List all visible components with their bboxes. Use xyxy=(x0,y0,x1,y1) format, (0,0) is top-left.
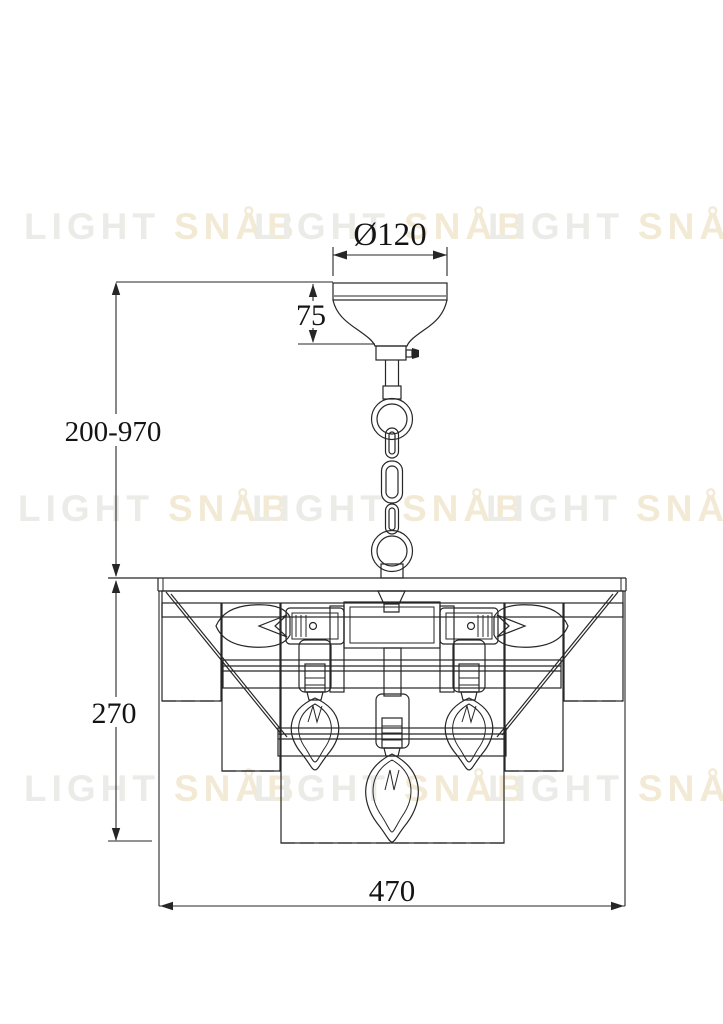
center-hub xyxy=(344,602,440,648)
ceiling-canopy-drawing xyxy=(333,283,447,360)
hanging-height-label: 200-970 xyxy=(65,416,162,448)
canopy-diameter-label: Ø120 xyxy=(353,217,426,253)
pendant-bulb-center xyxy=(366,648,419,842)
canopy-height-label: 75 xyxy=(296,299,326,332)
technical-line-drawing: Ø120 75 200-970 270 xyxy=(0,0,723,1024)
crystal-rod-fringe xyxy=(162,603,623,843)
dimension-canopy-height: 75 xyxy=(116,282,375,344)
canopy-screw xyxy=(406,348,419,359)
dimension-canopy-diameter: Ø120 xyxy=(333,217,447,276)
dimension-body-width: 470 xyxy=(159,591,625,910)
body-width-label: 470 xyxy=(369,873,416,908)
diagonal-arms xyxy=(166,592,618,737)
chandelier-body-drawing xyxy=(108,578,626,843)
body-height-label: 270 xyxy=(92,697,137,730)
dimension-hanging-height: 200-970 xyxy=(60,282,164,577)
frame-rails xyxy=(223,660,561,756)
chandelier-dimension-diagram: LIGHTSNÅB LIGHTSNÅB LIGHTSNÅB LIGHTSNÅB … xyxy=(0,0,723,1024)
dimension-body-height: 270 xyxy=(90,580,152,841)
suspension-chain-drawing xyxy=(372,360,413,578)
